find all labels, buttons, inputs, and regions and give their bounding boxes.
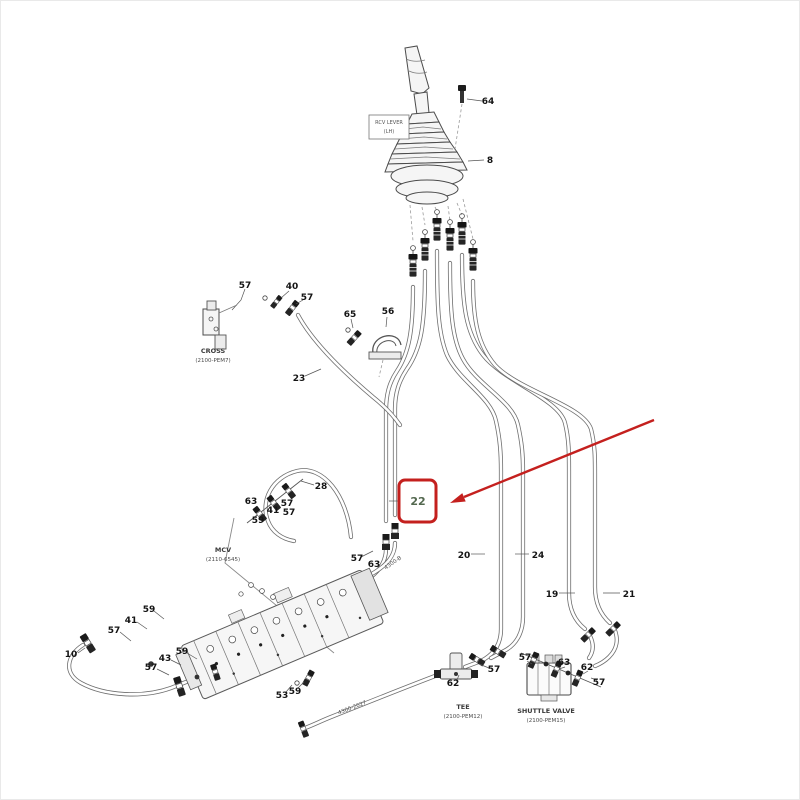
hose-19-elbow xyxy=(589,634,593,658)
callout-57-left: 57 xyxy=(108,626,121,636)
shuttle-label-line2: (2100-PEM15) xyxy=(527,718,566,724)
callout-57-hose22: 57 xyxy=(351,554,364,564)
callout-59-loop: 59 xyxy=(252,516,265,526)
cross-bracket: CROSS (2100-PEM7) xyxy=(195,289,245,364)
callout-57-shuttle: 57 xyxy=(519,653,532,663)
callout-23: 23 xyxy=(293,374,306,384)
hose-24 xyxy=(450,263,523,658)
parts-diagram-page: RCV LEVER (LH) xyxy=(0,0,800,800)
highlighted-part-number: 22 xyxy=(410,495,425,508)
cross-label-line2: (2100-PEM7) xyxy=(195,358,230,364)
callout-64: 64 xyxy=(482,97,495,107)
callout-63-loop: 63 xyxy=(245,497,258,507)
callout-20: 20 xyxy=(458,551,471,561)
callout-21: 21 xyxy=(623,590,636,600)
pilot-hose-fittings xyxy=(409,210,478,277)
callout-63-hose22: 63 xyxy=(368,560,381,570)
fitting-icon xyxy=(409,246,418,277)
callout-63-shuttle: 63 xyxy=(558,658,571,668)
hose-code-4300-2027: 4300-2027 xyxy=(337,700,368,717)
hose-21-elbow xyxy=(595,628,617,666)
bolt-64 xyxy=(455,85,466,149)
tee-label-line2: (2100-PEM12) xyxy=(444,714,483,720)
callout-43: 43 xyxy=(159,654,172,664)
tee-label-line1: TEE xyxy=(456,703,469,711)
pointer-arrow-head xyxy=(450,493,466,503)
fitting-icon xyxy=(433,210,442,241)
callout-57-shuttle2: 57 xyxy=(593,678,606,688)
mcv-label-line2: (2110-6545) xyxy=(206,557,240,563)
callout-40: 40 xyxy=(286,282,299,292)
hose-21 xyxy=(473,281,610,623)
hose-22 xyxy=(339,287,413,596)
callout-8: 8 xyxy=(487,156,493,166)
cross-label-line1: CROSS xyxy=(201,347,226,355)
callout-41-loop: 41 xyxy=(267,506,280,516)
shuttle-label-line1: SHUTTLE VALVE xyxy=(517,707,575,715)
joystick-assembly: RCV LEVER (LH) xyxy=(369,46,484,204)
mcv-label-line1: MCV xyxy=(215,546,231,554)
callout-57-loop2: 57 xyxy=(283,508,296,518)
shuttle-valve: SHUTTLE VALVE (2100-PEM15) xyxy=(517,621,621,724)
callout-59-left: 59 xyxy=(143,605,156,615)
pointer-arrow-line xyxy=(464,420,654,497)
hose-20 xyxy=(437,251,501,667)
callout-65: 65 xyxy=(344,310,357,320)
callout-57-mid: 57 xyxy=(145,663,158,673)
fitting-icon xyxy=(469,240,478,271)
callout-62-shuttle: 62 xyxy=(581,663,594,673)
rcv-lever-label-box: RCV LEVER (LH) xyxy=(369,115,409,139)
fitting-icon xyxy=(458,214,467,245)
fitting-icon xyxy=(421,230,430,261)
fitting-65 xyxy=(346,319,362,346)
mcv-block xyxy=(169,555,391,702)
clamp-56 xyxy=(369,317,401,377)
callout-57-cross2: 57 xyxy=(301,293,314,303)
parts-diagram: RCV LEVER (LH) xyxy=(1,1,800,800)
callout-59-mid: 59 xyxy=(176,647,189,657)
callout-57-tee: 57 xyxy=(488,665,501,675)
callout-28: 28 xyxy=(315,482,328,492)
rcv-box-line2: (LH) xyxy=(384,129,394,135)
callout-41-left: 41 xyxy=(125,616,138,626)
fitting-icon xyxy=(446,220,455,251)
hose-4300 xyxy=(305,673,443,728)
callout-24: 24 xyxy=(532,551,545,561)
callout-53: 53 xyxy=(276,691,289,701)
rcv-box-line1: RCV LEVER xyxy=(375,120,403,126)
callout-62-tee: 62 xyxy=(447,679,460,689)
hose-23-fittings xyxy=(263,291,303,316)
callout-19: 19 xyxy=(546,590,559,600)
callout-59-bottom: 59 xyxy=(289,687,302,697)
mcv-top-ports xyxy=(239,583,276,600)
callout-10: 10 xyxy=(65,650,78,660)
callout-57-cross: 57 xyxy=(239,281,252,291)
callout-56: 56 xyxy=(382,307,395,317)
